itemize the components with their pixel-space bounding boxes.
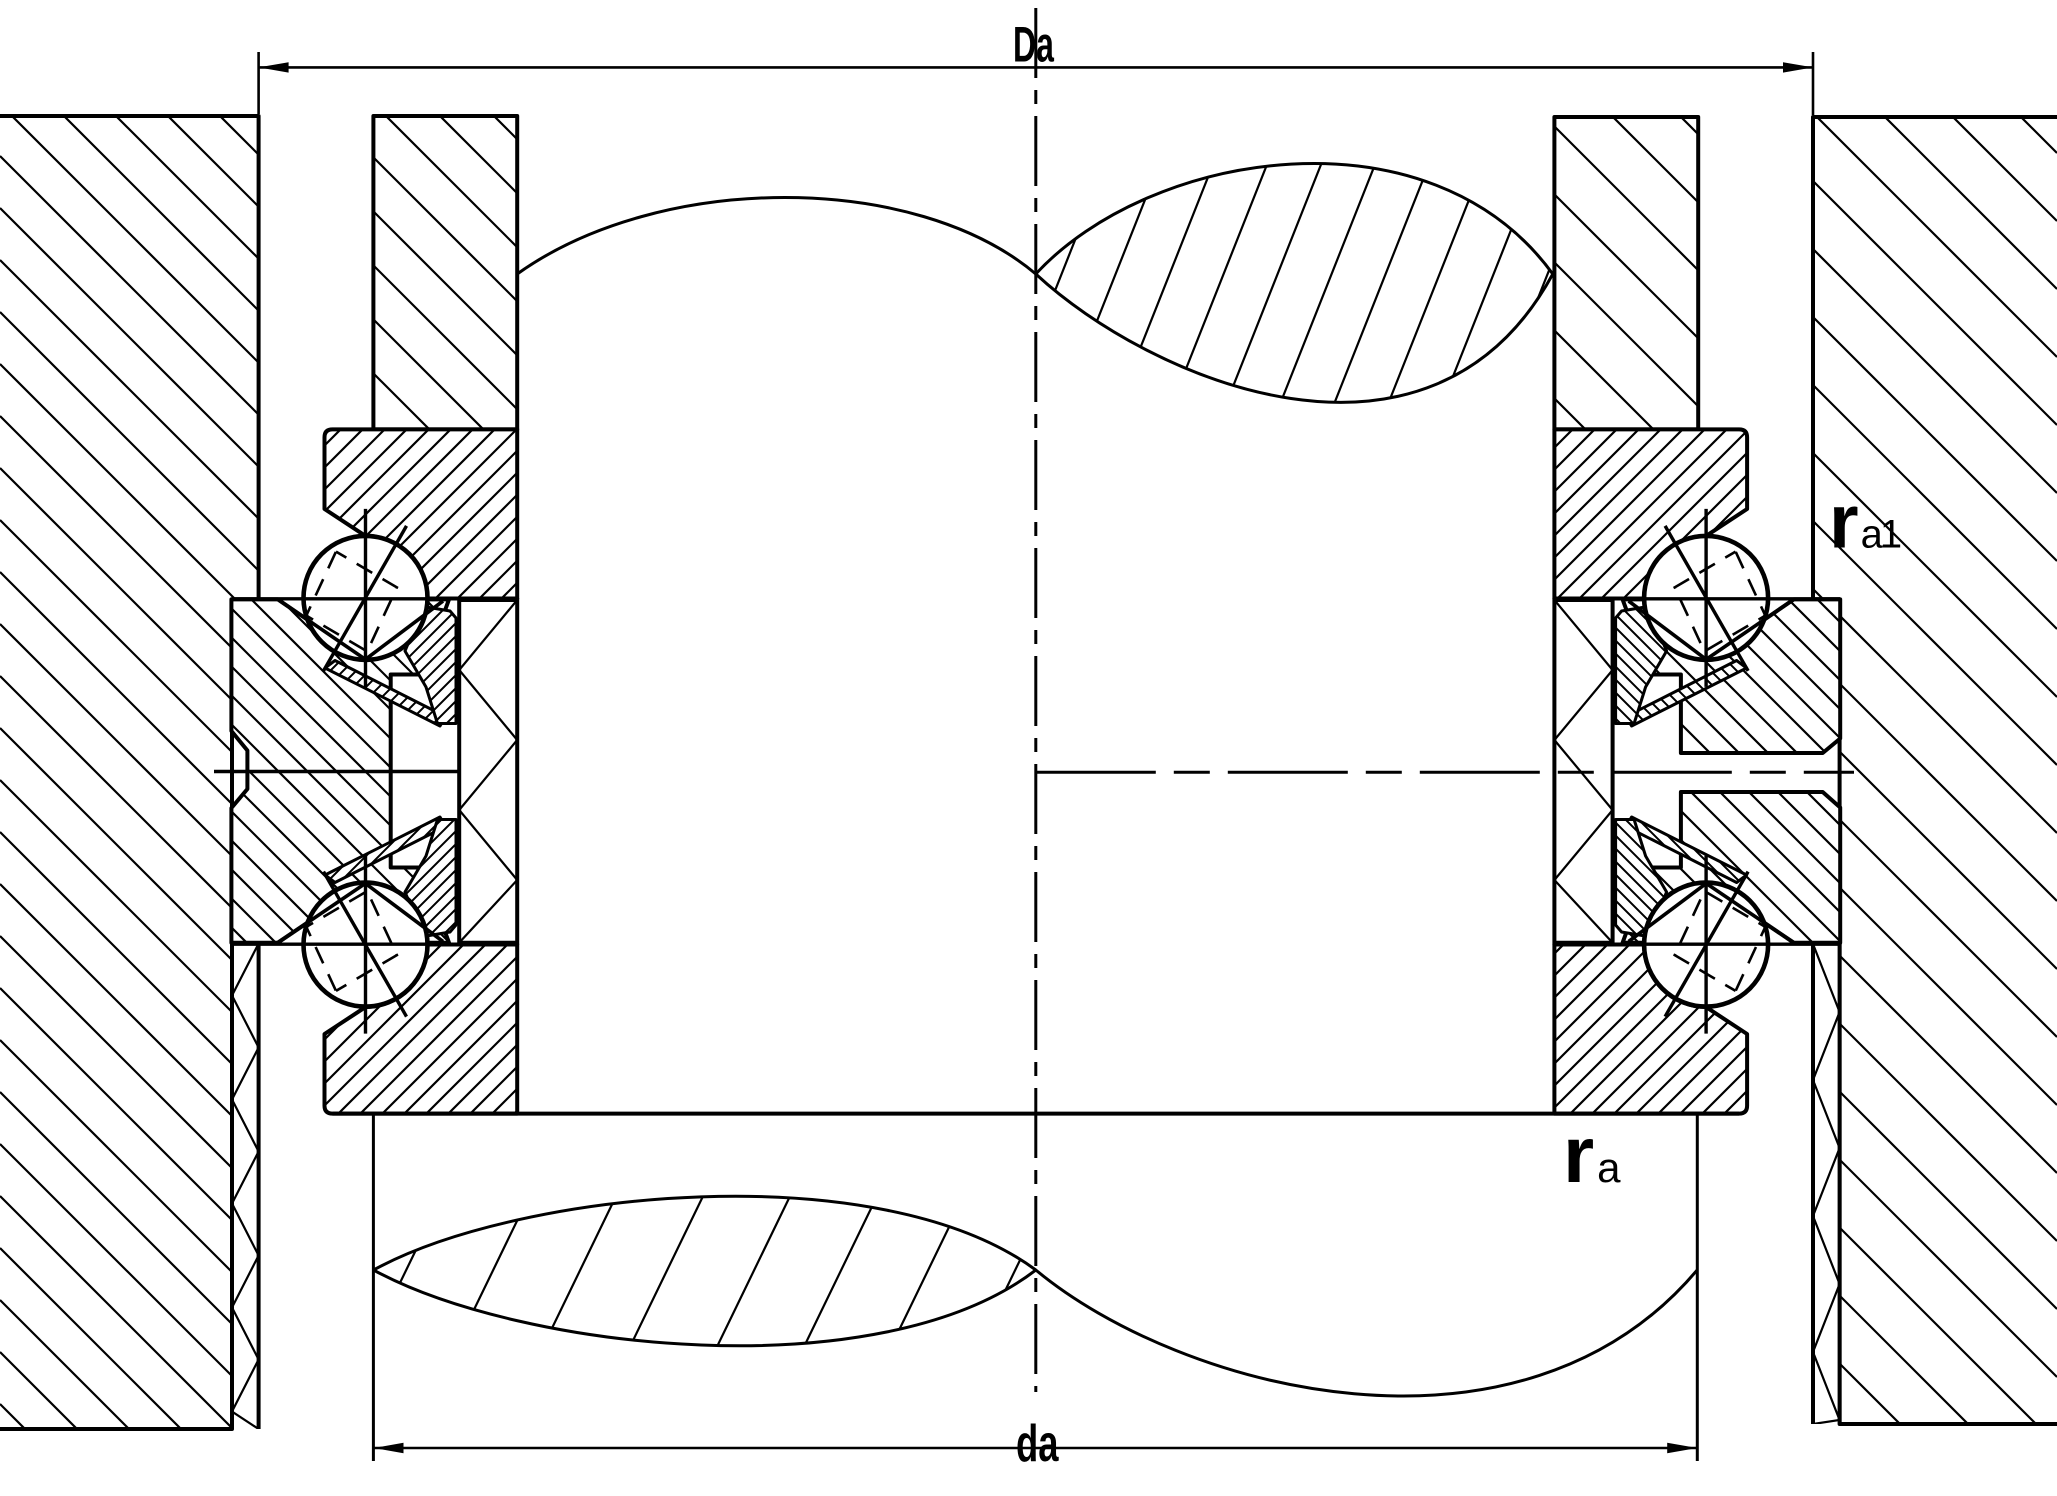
svg-text:Da: Da [1013, 16, 1054, 72]
svg-text:da: da [1016, 1413, 1059, 1472]
